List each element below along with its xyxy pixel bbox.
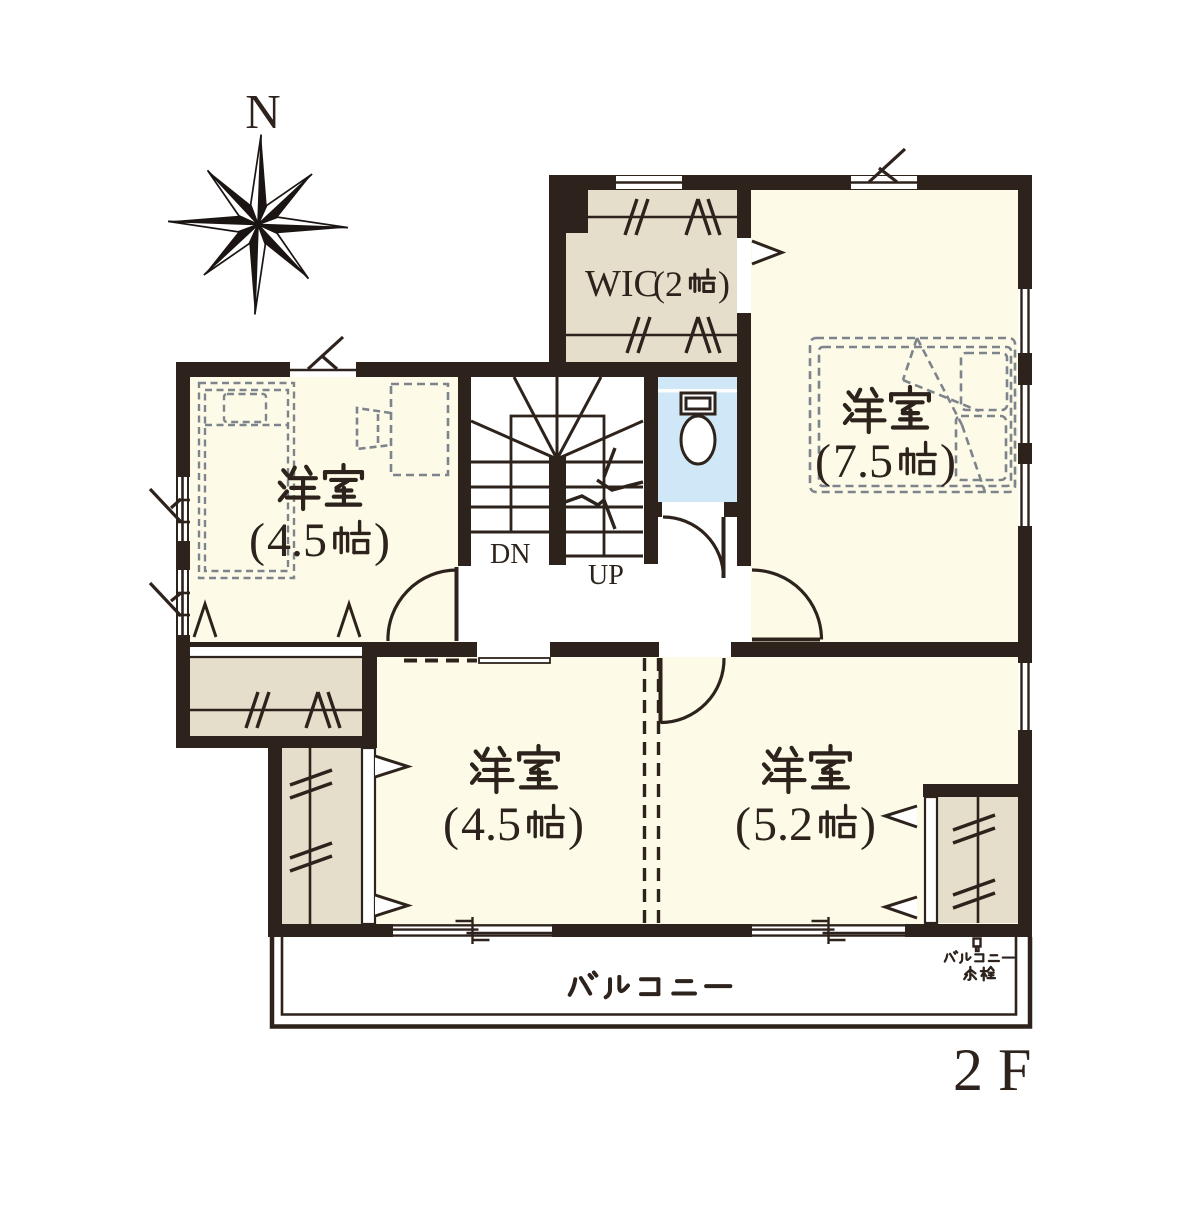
svg-text:(: ( [735, 798, 751, 851]
svg-text:(2: (2 [653, 264, 683, 304]
svg-text:7.5: 7.5 [833, 435, 893, 488]
svg-text:(: ( [443, 798, 459, 851]
svg-text:5.2: 5.2 [753, 798, 813, 851]
svg-text:4.5: 4.5 [461, 798, 521, 851]
svg-text:(: ( [249, 514, 265, 567]
svg-text:): ) [718, 264, 730, 304]
svg-text:): ) [568, 798, 584, 851]
svg-text:2F: 2F [953, 1037, 1046, 1103]
svg-text:WIC: WIC [585, 263, 659, 305]
svg-text:DN: DN [490, 539, 530, 570]
svg-text:(: ( [815, 435, 831, 488]
svg-text:): ) [860, 798, 876, 851]
svg-text:): ) [940, 435, 956, 488]
svg-text:N: N [245, 84, 280, 139]
svg-text:UP: UP [588, 560, 624, 591]
svg-text:4.5: 4.5 [267, 514, 327, 567]
svg-text:): ) [374, 514, 390, 567]
